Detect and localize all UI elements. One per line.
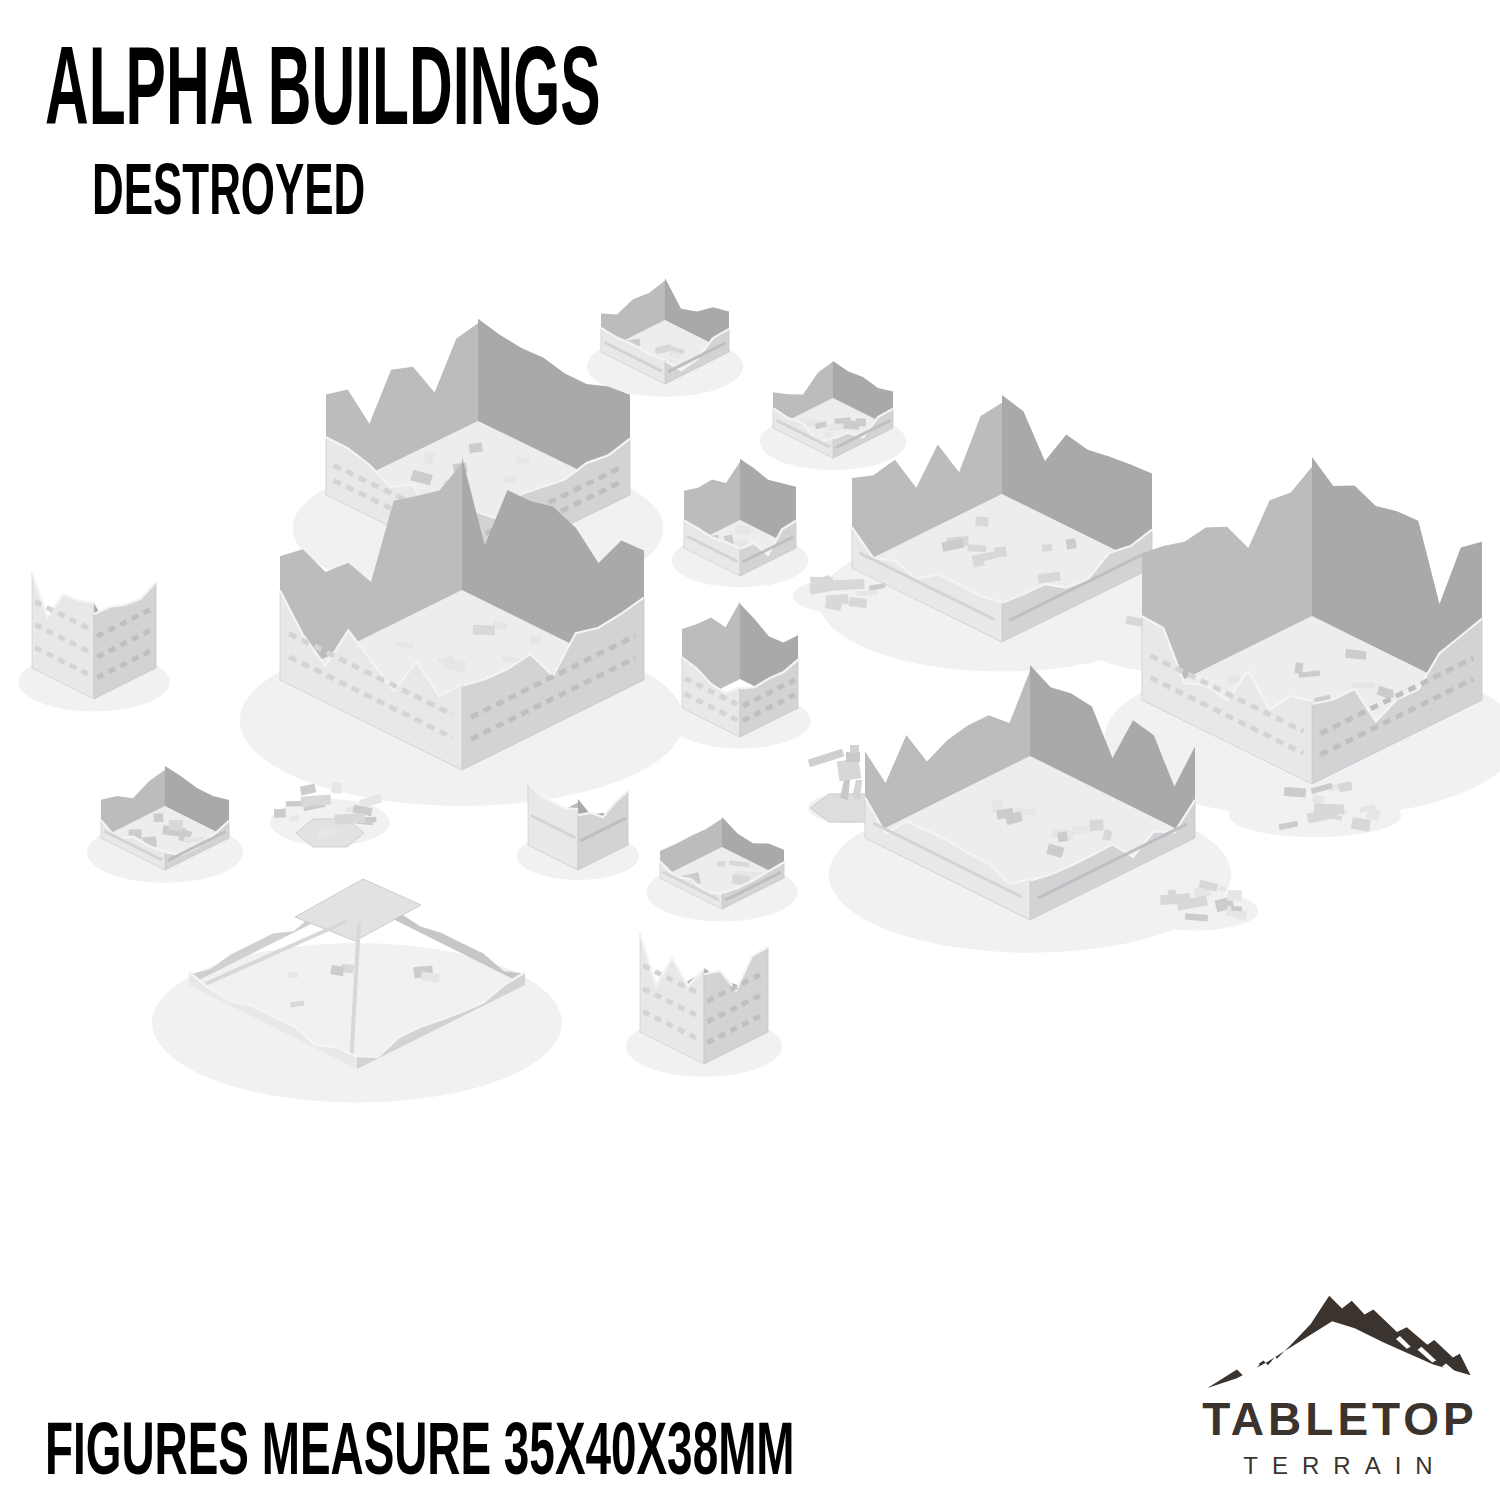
page-subtitle-text: DESTROYED: [92, 153, 365, 225]
mountain-icon: [1206, 1282, 1474, 1390]
tower-open-center: [682, 601, 798, 737]
brand-name-bottom: TERRAIN: [1202, 1452, 1488, 1480]
figure-size-note: FIGURES MEASURE 35X40X38MM: [45, 1412, 1254, 1486]
figure-size-note-text: FIGURES MEASURE 35X40X38MM: [45, 1412, 795, 1486]
page-title-text: ALPHA BUILDINGS: [45, 30, 601, 142]
brand-name-top: TABLETOP: [1192, 1392, 1488, 1446]
brand-logo: TABLETOP TERRAIN: [1192, 1282, 1488, 1480]
product-image-page: { "header": { "title": "ALPHA BUILDINGS"…: [0, 0, 1500, 1500]
page-subtitle: DESTROYED: [92, 153, 540, 225]
page-title: ALPHA BUILDINGS: [45, 30, 1074, 142]
